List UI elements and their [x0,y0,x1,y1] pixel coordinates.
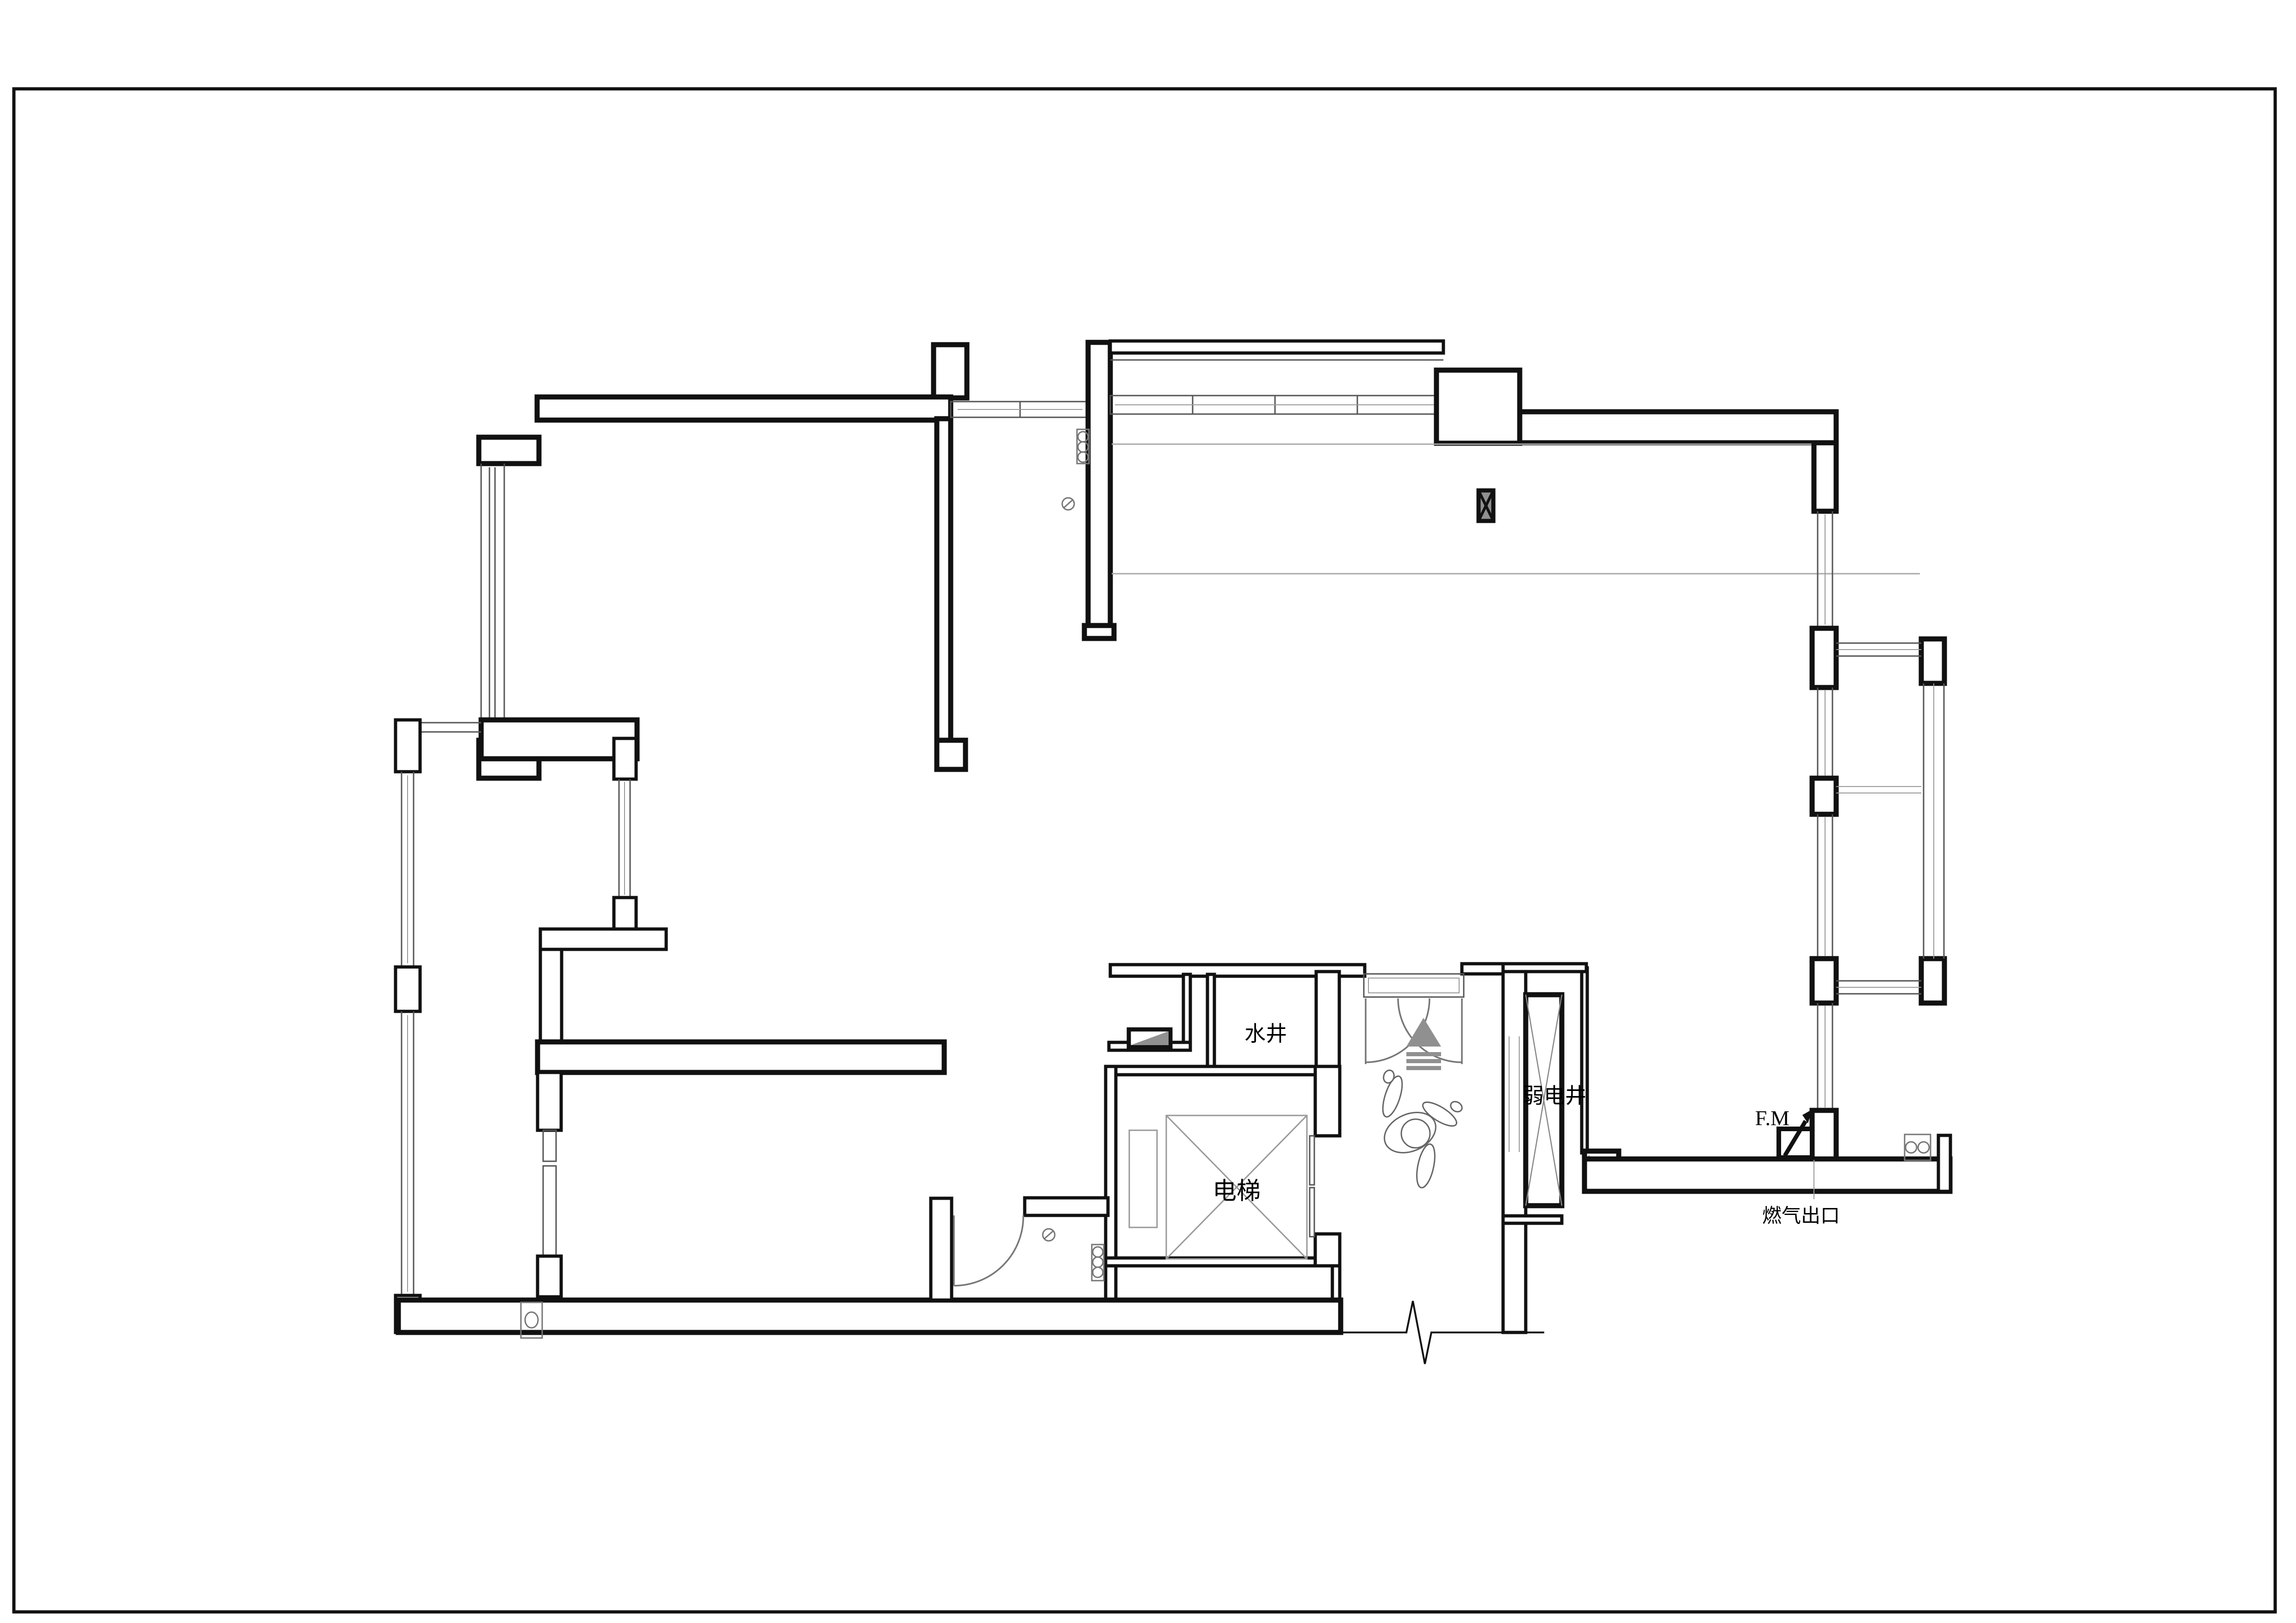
window-right-2 [1818,688,1832,778]
entry-door-frame [1364,974,1464,997]
elevator-right-wall-upper [1315,1066,1340,1136]
elevator-shaft: 电梯 [1106,1066,1340,1333]
interior-partition-door [543,1130,556,1256]
wall-right-foot [937,740,965,769]
interior-wall-drop [538,1072,561,1130]
floor-plan-canvas: F.M 燃气出口 水井 [0,0,2296,1623]
long-interior-wall [538,1042,944,1072]
elevator-label: 电梯 [1213,1177,1261,1205]
wall-step-left [479,437,539,464]
person-figure [1378,1069,1464,1189]
door-jamb-wall [931,1198,952,1300]
kitchen-right-wall [1938,1135,1950,1191]
bay-window-right [1836,639,1944,1003]
drawing-sheet: F.M 燃气出口 水井 [0,0,2296,1623]
small-room-right-wall [1183,974,1190,1048]
gas-meter-label: F.M [1755,1106,1789,1130]
bay-column-top [1921,639,1944,683]
elevator-door-panel-1 [1310,1136,1314,1185]
elevator-top-wall [1106,1066,1340,1075]
gas-outlet-label: 燃气出口 [1762,1204,1840,1227]
bay-column-bottom [1921,959,1944,1003]
window-right-1 [1818,511,1832,628]
elevator-right-wall-lower [1315,1234,1340,1266]
wall-corridor-vertical [1088,342,1110,638]
entry-top-wall-right [1462,964,1504,974]
water-shaft-right-wall [1316,972,1339,1070]
entry-arrow [1406,1018,1441,1070]
window-left [481,464,504,740]
wall-stub-gas [1812,1110,1836,1159]
wall-top [537,397,951,420]
water-shaft-left-wall [1207,974,1214,1069]
elevator-door-panel-2 [1310,1188,1314,1237]
kitchen-left-wall [1582,968,1587,1153]
balcony-top [1110,341,1443,414]
duct-symbol [1129,1029,1170,1047]
core-top: 水井 [1109,964,1504,1070]
wall-stub-top-left [934,345,967,398]
left-wing-bottom-wall-drop [540,949,562,1042]
wall-pier-top-right [1436,370,1520,443]
wall-right [937,419,951,769]
left-exterior-window-1 [402,772,414,967]
water-shaft-label: 水井 [1244,1021,1287,1046]
lv-shaft-bottom-wall [1503,1216,1562,1223]
window-right-4 [1818,1003,1832,1110]
interior-door-arc [954,1215,1023,1286]
bottom-room-top-wall [1025,1198,1108,1215]
bedroom-top-left [479,345,1089,778]
lv-shaft-label: 弱电井 [1522,1083,1586,1108]
elevator-counterweight [1129,1130,1157,1227]
floor-drain-top [1062,498,1074,510]
bottom-left-rooms [398,1042,1341,1338]
left-wing [396,720,666,1332]
sheet-border [14,89,2275,1612]
column-marker [1479,490,1493,521]
balcony-outer-rail [1110,341,1443,353]
floor-plan: F.M 燃气出口 水井 [396,341,1950,1364]
floor-drain-bottom [1043,1229,1055,1241]
entry [1340,972,1544,1364]
left-wing-bottom-wall [540,929,666,949]
corridor-right-wall [1503,972,1526,1332]
bottom-exterior-wall [398,1300,1341,1332]
kitchen: F.M 燃气出口 [1582,968,1950,1227]
window-right-3 [1818,814,1832,959]
left-wing-right-wall-top [614,738,636,779]
lv-shaft-top-wall [1503,964,1586,972]
wall-top-right [1520,412,1836,443]
left-wing-right-window [619,779,630,898]
kitchen-bottom-wall [1584,1159,1950,1191]
left-exterior-window-2 [402,1011,414,1295]
meter-strip-bottom [1092,1245,1104,1281]
left-wall-mid-block [396,967,420,1011]
wall-right-side [1812,443,1836,1159]
window-top [951,402,1089,417]
partition-bottom-block [538,1256,561,1297]
left-wall-corner-block [396,720,420,772]
wall-corridor-cap [1084,626,1114,638]
